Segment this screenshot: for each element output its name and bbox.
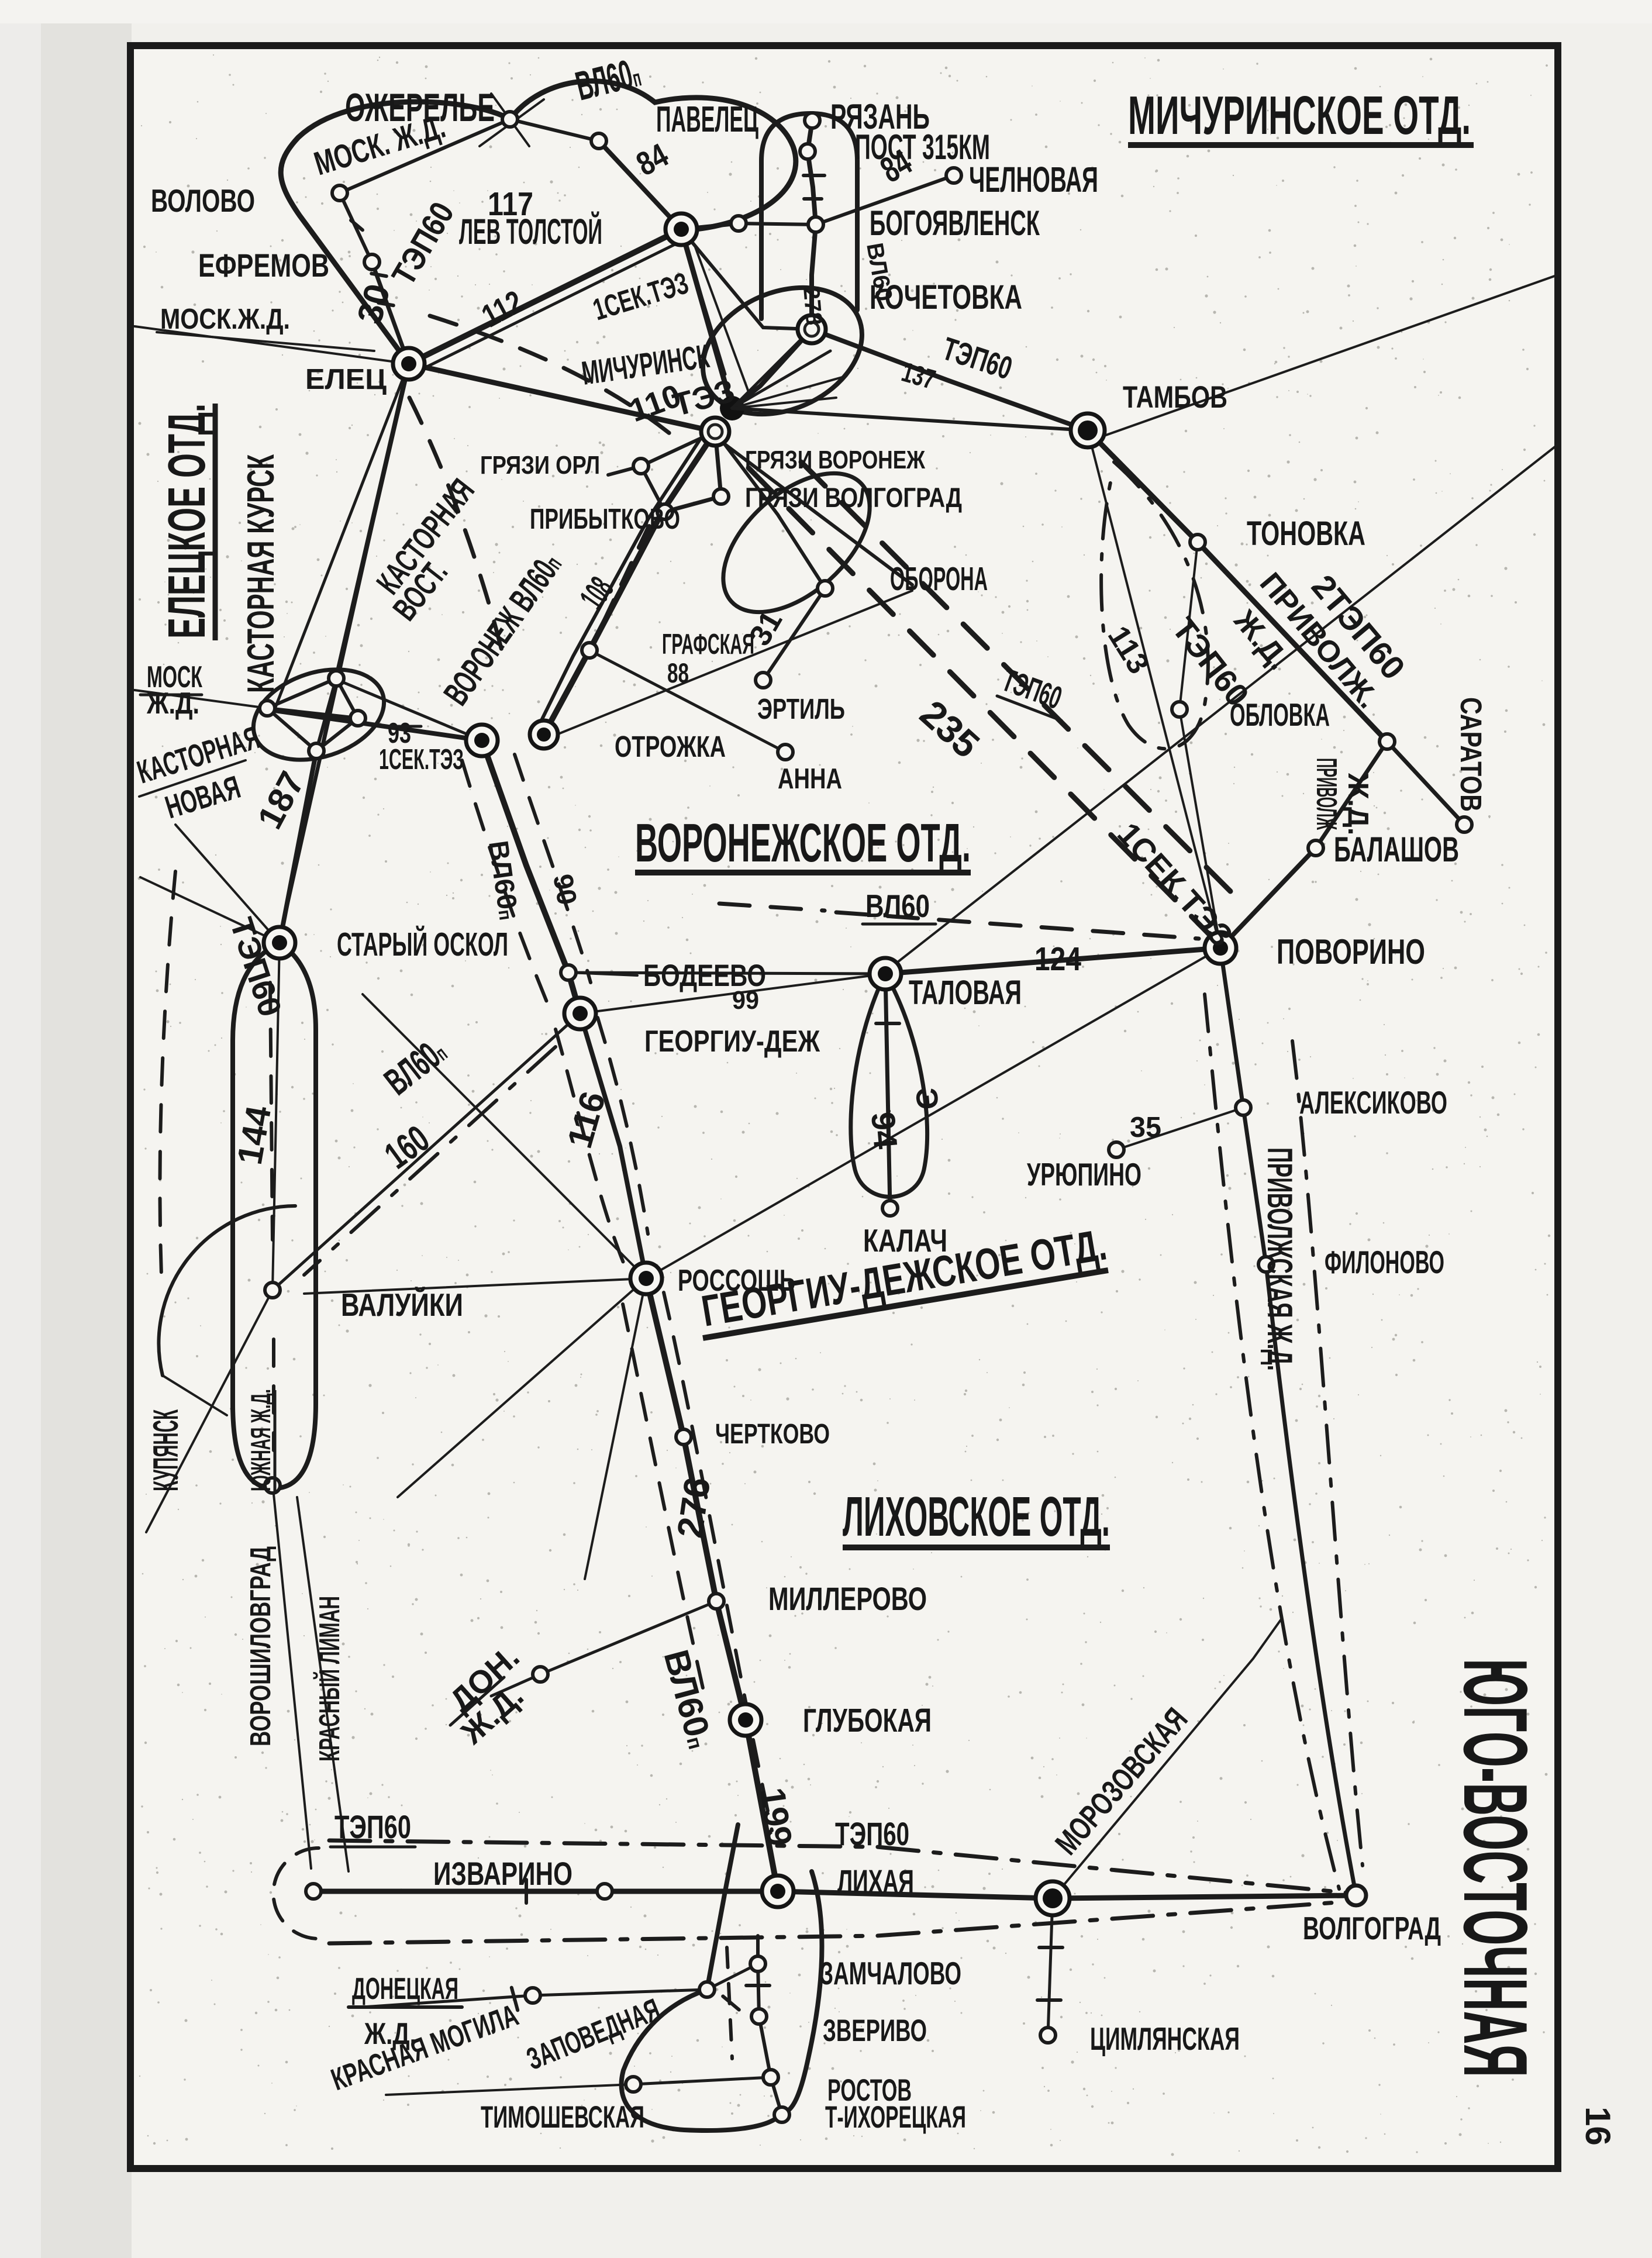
svg-text:ПРИБЫТКОВО: ПРИБЫТКОВО	[530, 504, 680, 535]
svg-text:ГРЯЗИ ВОРОНЕЖ: ГРЯЗИ ВОРОНЕЖ	[745, 446, 925, 474]
svg-text:ГРАФСКАЯ: ГРАФСКАЯ	[662, 629, 754, 660]
svg-text:276: 276	[670, 1475, 719, 1540]
svg-text:КРАСНЫЙ ЛИМАН: КРАСНЫЙ ЛИМАН	[313, 1596, 346, 1761]
svg-text:МИЛЛЕРОВО: МИЛЛЕРОВО	[768, 1580, 927, 1617]
svg-text:ФИЛОНОВО: ФИЛОНОВО	[1325, 1244, 1444, 1280]
svg-text:БОГОЯВЛЕНСК: БОГОЯВЛЕНСК	[870, 204, 1040, 243]
svg-text:Ж.Д.: Ж.Д.	[146, 687, 199, 721]
svg-text:ТИМОШЕВСКАЯ: ТИМОШЕВСКАЯ	[481, 2100, 644, 2135]
svg-text:ЕФРЕМОВ: ЕФРЕМОВ	[198, 247, 329, 284]
svg-text:ТОНОВКА: ТОНОВКА	[1247, 515, 1365, 553]
svg-text:Э: Э	[909, 1087, 944, 1111]
svg-text:АЛЕКСИКОВО: АЛЕКСИКОВО	[1299, 1084, 1447, 1121]
svg-text:УРЮПИНО: УРЮПИНО	[1027, 1156, 1141, 1192]
svg-text:Ж.Д.: Ж.Д.	[1342, 773, 1374, 835]
svg-text:ЮЖНАЯ Ж.Д.: ЮЖНАЯ Ж.Д.	[245, 1389, 276, 1491]
svg-text:АННА: АННА	[778, 763, 842, 795]
svg-text:ПРИВОЛЖСКАЯ Ж.Д.: ПРИВОЛЖСКАЯ Ж.Д.	[1260, 1147, 1299, 1371]
svg-text:МИЧУРИНСКОЕ ОТД.: МИЧУРИНСКОЕ ОТД.	[1128, 85, 1471, 146]
svg-text:ЦИМЛЯНСКАЯ: ЦИМЛЯНСКАЯ	[1090, 2021, 1240, 2057]
svg-text:ЛИХОВСКОЕ ОТД.: ЛИХОВСКОЕ ОТД.	[843, 1485, 1110, 1548]
svg-text:МОСК.Ж.Д.: МОСК.Ж.Д.	[160, 304, 290, 335]
svg-text:БАЛАШОВ: БАЛАШОВ	[1334, 830, 1459, 869]
svg-text:ЕЛЕЦКОЕ ОТД.: ЕЛЕЦКОЕ ОТД.	[158, 404, 216, 639]
svg-text:ЕЛЕЦ: ЕЛЕЦ	[305, 364, 387, 395]
svg-text:199: 199	[753, 1785, 799, 1848]
svg-text:124: 124	[1034, 940, 1081, 978]
svg-text:1СЕК.ТЭЗ: 1СЕК.ТЭЗ	[379, 744, 464, 775]
svg-text:ЭРТИЛЬ: ЭРТИЛЬ	[757, 694, 845, 725]
svg-text:ПОВОРИНО: ПОВОРИНО	[1277, 932, 1425, 971]
svg-text:ИЗВАРИНО: ИЗВАРИНО	[433, 1855, 572, 1892]
svg-text:ОБЛОВКА: ОБЛОВКА	[1230, 697, 1330, 733]
svg-text:СТАРЫЙ ОСКОЛ: СТАРЫЙ ОСКОЛ	[337, 925, 508, 963]
svg-text:ТАЛОВАЯ: ТАЛОВАЯ	[909, 974, 1022, 1012]
svg-text:ТЭП60: ТЭП60	[835, 1815, 909, 1852]
svg-text:ТЭП60: ТЭП60	[334, 1808, 411, 1845]
svg-text:САРАТОВ: САРАТОВ	[1454, 697, 1488, 812]
svg-text:ТАМБОВ: ТАМБОВ	[1123, 380, 1227, 415]
svg-text:ОБОРОНА: ОБОРОНА	[890, 560, 988, 598]
svg-text:ЛЕВ ТОЛСТОЙ: ЛЕВ ТОЛСТОЙ	[459, 211, 602, 251]
svg-text:ВАЛУЙКИ: ВАЛУЙКИ	[341, 1286, 463, 1323]
svg-text:ПАВЕЛЕЦ: ПАВЕЛЕЦ	[656, 99, 758, 140]
svg-text:ГРЯЗИ ВОЛГОГРАД: ГРЯЗИ ВОЛГОГРАД	[745, 482, 962, 513]
svg-text:278: 278	[798, 286, 827, 326]
svg-text:ВОРОНЕЖСКОЕ ОТД.: ВОРОНЕЖСКОЕ ОТД.	[635, 812, 971, 873]
svg-text:ПРИВОЛЖ: ПРИВОЛЖ	[1310, 758, 1342, 830]
svg-text:ВОРОШИЛОВГРАД: ВОРОШИЛОВГРАД	[245, 1546, 277, 1746]
svg-text:ЛИХАЯ: ЛИХАЯ	[837, 1863, 914, 1900]
svg-text:99: 99	[732, 986, 759, 1015]
svg-text:ЗАМЧАЛОВО: ЗАМЧАЛОВО	[820, 1955, 961, 1991]
svg-text:90: 90	[547, 872, 583, 908]
svg-text:ЧЕРТКОВО: ЧЕРТКОВО	[715, 1419, 830, 1450]
svg-text:ГЕОРГИУ-ДЕЖ: ГЕОРГИУ-ДЕЖ	[644, 1025, 820, 1059]
svg-text:ОТРОЖКА: ОТРОЖКА	[615, 730, 726, 763]
svg-text:16: 16	[1578, 2107, 1617, 2146]
svg-text:КОЧЕТОВКА: КОЧЕТОВКА	[870, 278, 1022, 316]
svg-text:КУПЯНСК: КУПЯНСК	[146, 1409, 185, 1491]
svg-text:ЗВЕРИВО: ЗВЕРИВО	[823, 2014, 927, 2048]
svg-text:ДОНЕЦКАЯ: ДОНЕЦКАЯ	[352, 1972, 458, 2006]
svg-text:ЮГО-ВОСТОЧНАЯ: ЮГО-ВОСТОЧНАЯ	[1445, 1659, 1546, 2077]
svg-text:35: 35	[1130, 1112, 1161, 1143]
svg-text:ВОЛОВО: ВОЛОВО	[151, 182, 255, 219]
svg-text:ГЛУБОКАЯ: ГЛУБОКАЯ	[803, 1702, 932, 1739]
svg-text:ВЛ60: ВЛ60	[865, 888, 930, 924]
svg-text:ГРЯЗИ ОРЛ: ГРЯЗИ ОРЛ	[480, 451, 600, 480]
svg-text:ВОЛГОГРАД: ВОЛГОГРАД	[1303, 1910, 1441, 1946]
svg-text:ЧЕЛНОВАЯ: ЧЕЛНОВАЯ	[969, 160, 1098, 199]
svg-text:94: 94	[864, 1111, 904, 1151]
svg-text:КАСТОРНАЯ КУРСК: КАСТОРНАЯ КУРСК	[239, 454, 282, 693]
svg-text:Т-ИХОРЕЦКАЯ: Т-ИХОРЕЦКАЯ	[825, 2100, 966, 2135]
svg-text:88: 88	[667, 657, 689, 688]
